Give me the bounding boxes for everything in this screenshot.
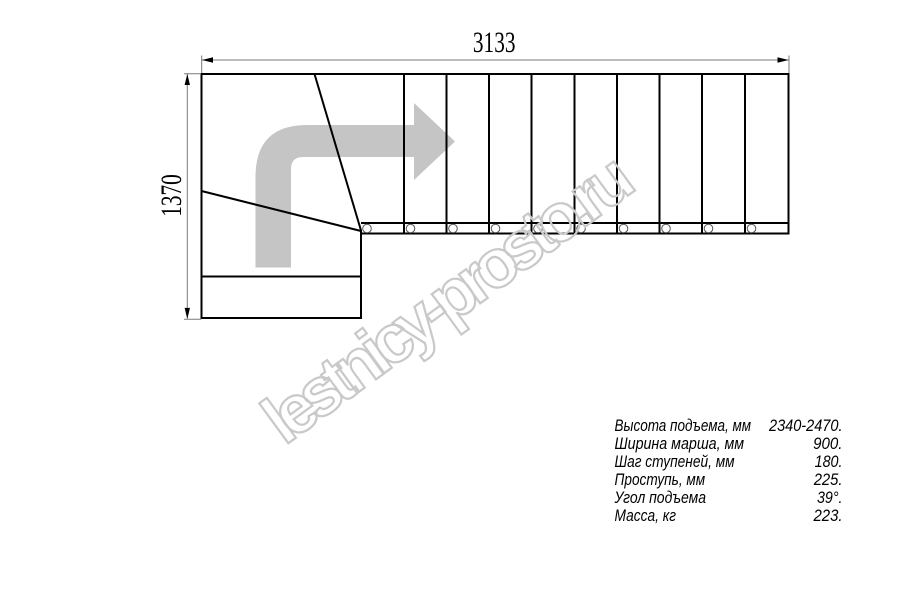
svg-text:39°.: 39°. — [817, 488, 843, 507]
svg-text:223.: 223. — [813, 506, 843, 525]
svg-text:Шаг ступеней, мм: Шаг ступеней, мм — [615, 452, 735, 471]
svg-text:225.: 225. — [813, 470, 843, 489]
svg-text:2340-2470.: 2340-2470. — [768, 416, 842, 435]
svg-text:1370: 1370 — [154, 174, 187, 217]
svg-text:Ширина марша, мм: Ширина марша, мм — [615, 434, 745, 453]
svg-text:Проступь, мм: Проступь, мм — [615, 470, 706, 489]
svg-text:Угол подъема: Угол подъема — [614, 488, 706, 507]
svg-text:900.: 900. — [813, 434, 842, 453]
svg-text:180.: 180. — [815, 452, 843, 471]
svg-text:Высота подъема, мм: Высота подъема, мм — [615, 416, 752, 435]
svg-text:3133: 3133 — [473, 25, 516, 58]
svg-text:Масса, кг: Масса, кг — [615, 506, 677, 525]
